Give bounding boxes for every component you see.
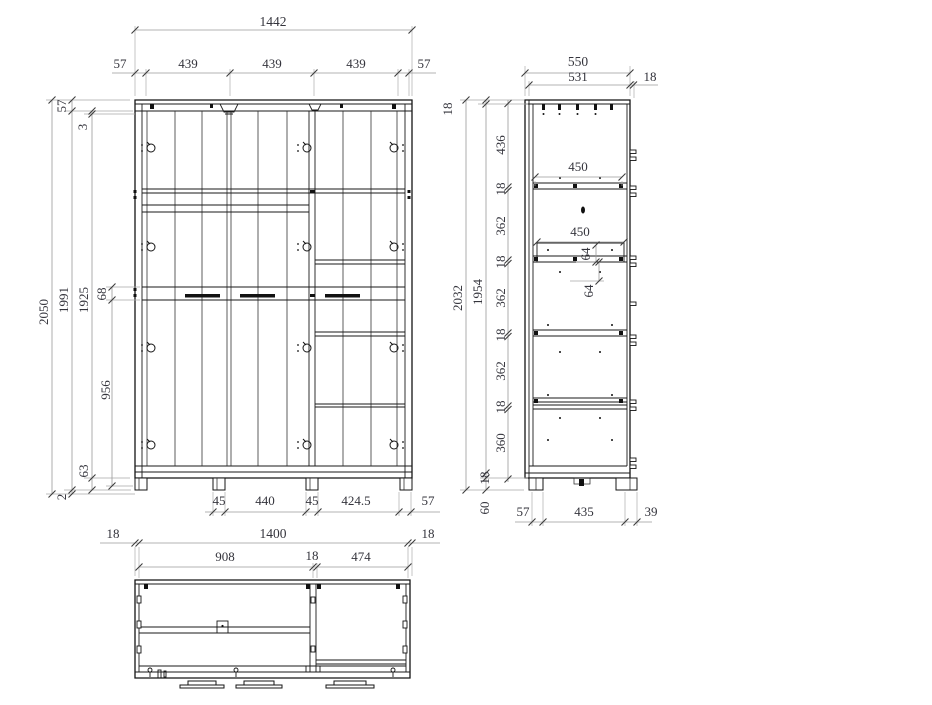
dim-front-top-chain-1: 439: [178, 56, 198, 71]
dim-front-lower-section: 956: [98, 380, 113, 400]
front-view: [134, 100, 413, 490]
front-door-planks: [147, 111, 397, 466]
door-handle: [185, 294, 220, 298]
front-structure: [135, 104, 412, 478]
leg: [135, 478, 147, 490]
plan-view-dimensions: 18 1400 18 908 18 474: [100, 526, 440, 578]
dim-side-bottom-chain-1: 435: [574, 504, 594, 519]
dim-side-shelf-depth-upper: 450: [568, 159, 588, 174]
plan-view: [135, 580, 410, 688]
front-legs: [135, 478, 412, 490]
leg: [400, 478, 412, 490]
dim-side-section-3: 18: [493, 256, 508, 269]
dim-front-handle-rail: 68: [94, 288, 109, 301]
plan-fittings: [148, 668, 395, 678]
plan-edge-tabs: [137, 596, 407, 653]
dim-side-offset-lower: 64: [581, 284, 596, 298]
dim-front-top-chain-2: 439: [262, 56, 282, 71]
dim-side-section-0: 436: [493, 135, 508, 155]
dim-plan-width-chain-1: 1400: [260, 526, 287, 541]
leg: [306, 478, 318, 490]
dim-front-top-chain-4: 57: [418, 56, 432, 71]
dim-front-top-gap: 3: [75, 124, 90, 131]
side-shelf-end-marks: [534, 184, 623, 403]
dim-front-height-body: 1991: [56, 287, 71, 313]
dim-side-bottom-chain-0: 57: [517, 504, 531, 519]
dim-side-section-6: 362: [493, 361, 508, 381]
dim-front-bottom-chain-1: 440: [255, 493, 275, 508]
dim-front-top-chain-0: 57: [114, 56, 128, 71]
side-legs: [529, 478, 637, 490]
dim-front-bottom-rail: 63: [76, 465, 91, 478]
dim-side-section-4: 362: [493, 288, 508, 308]
front-view-dimensions: 1442 57 439 439 439 57 2050 57 1991 3 19…: [36, 14, 440, 516]
dim-side-bottom-panel: 18: [477, 472, 492, 485]
dim-side-section-5: 18: [493, 329, 508, 342]
front-top-brackets: [150, 104, 396, 114]
dim-side-shelf-depth-lower: 450: [570, 224, 590, 239]
keyhole-cam: [581, 207, 585, 214]
door-handle: [325, 294, 360, 298]
dim-side-front-edge: 18: [644, 69, 657, 84]
plan-feet: [180, 681, 374, 688]
front-outline: [135, 100, 412, 478]
plan-structure: [135, 584, 410, 672]
side-screw-dots: [547, 177, 613, 441]
leg: [213, 478, 225, 490]
technical-drawing-canvas: 1442 57 439 439 439 57 2050 57 1991 3 19…: [0, 0, 932, 705]
dim-front-top-rail: 57: [54, 99, 69, 113]
dim-plan-inner-chain-0: 908: [215, 549, 235, 564]
dim-front-height-interior: 1925: [76, 287, 91, 313]
dim-side-depth-inner: 531: [568, 69, 588, 84]
dim-side-plinth-height: 60: [477, 502, 492, 515]
side-edge-connectors: [630, 150, 636, 469]
front-handles: [185, 294, 360, 298]
side-outline: [525, 100, 630, 478]
dim-plan-width-chain-0: 18: [107, 526, 120, 541]
door-handle: [240, 294, 275, 298]
dim-front-base-gap: 2: [54, 494, 69, 501]
dim-plan-width-chain-2: 18: [422, 526, 435, 541]
dim-side-offset-upper: 64: [578, 247, 593, 261]
dim-plan-inner-chain-2: 474: [351, 549, 371, 564]
dim-side-top-panel: 18: [440, 103, 455, 116]
dim-front-bottom-chain-0: 45: [213, 493, 226, 508]
dim-plan-inner-chain-1: 18: [306, 548, 319, 563]
plan-outline: [135, 580, 410, 678]
leg: [616, 478, 637, 490]
dim-side-section-7: 18: [493, 401, 508, 414]
side-top-tabs: [542, 104, 613, 115]
dim-front-bottom-chain-4: 57: [422, 493, 436, 508]
front-shelf-lines: [142, 189, 405, 407]
dim-side-section-1: 18: [493, 183, 508, 196]
side-structure: [525, 100, 630, 478]
dim-side-section-8: 360: [493, 433, 508, 453]
dim-side-height-inner: 1954: [470, 279, 485, 306]
plan-divider-foot: [306, 666, 320, 672]
dim-front-total-width: 1442: [260, 14, 287, 29]
side-view-dimensions: 550 531 18 18 2032 1954 436 18 362 18 36…: [440, 54, 658, 526]
dim-side-depth-total: 550: [568, 54, 589, 69]
dim-front-bottom-chain-2: 45: [306, 493, 319, 508]
dim-side-section-2: 362: [493, 216, 508, 236]
dim-front-bottom-chain-3: 424.5: [341, 493, 370, 508]
dim-front-height-overall: 2050: [36, 299, 51, 325]
drawing-sheet: 1442 57 439 439 439 57 2050 57 1991 3 19…: [0, 0, 932, 705]
dim-side-bottom-chain-2: 39: [645, 504, 658, 519]
dim-side-height-overall: 2032: [450, 285, 465, 311]
side-shelf-lines: [533, 183, 627, 409]
dim-front-top-chain-3: 439: [346, 56, 366, 71]
plan-top-tabs: [144, 584, 400, 589]
